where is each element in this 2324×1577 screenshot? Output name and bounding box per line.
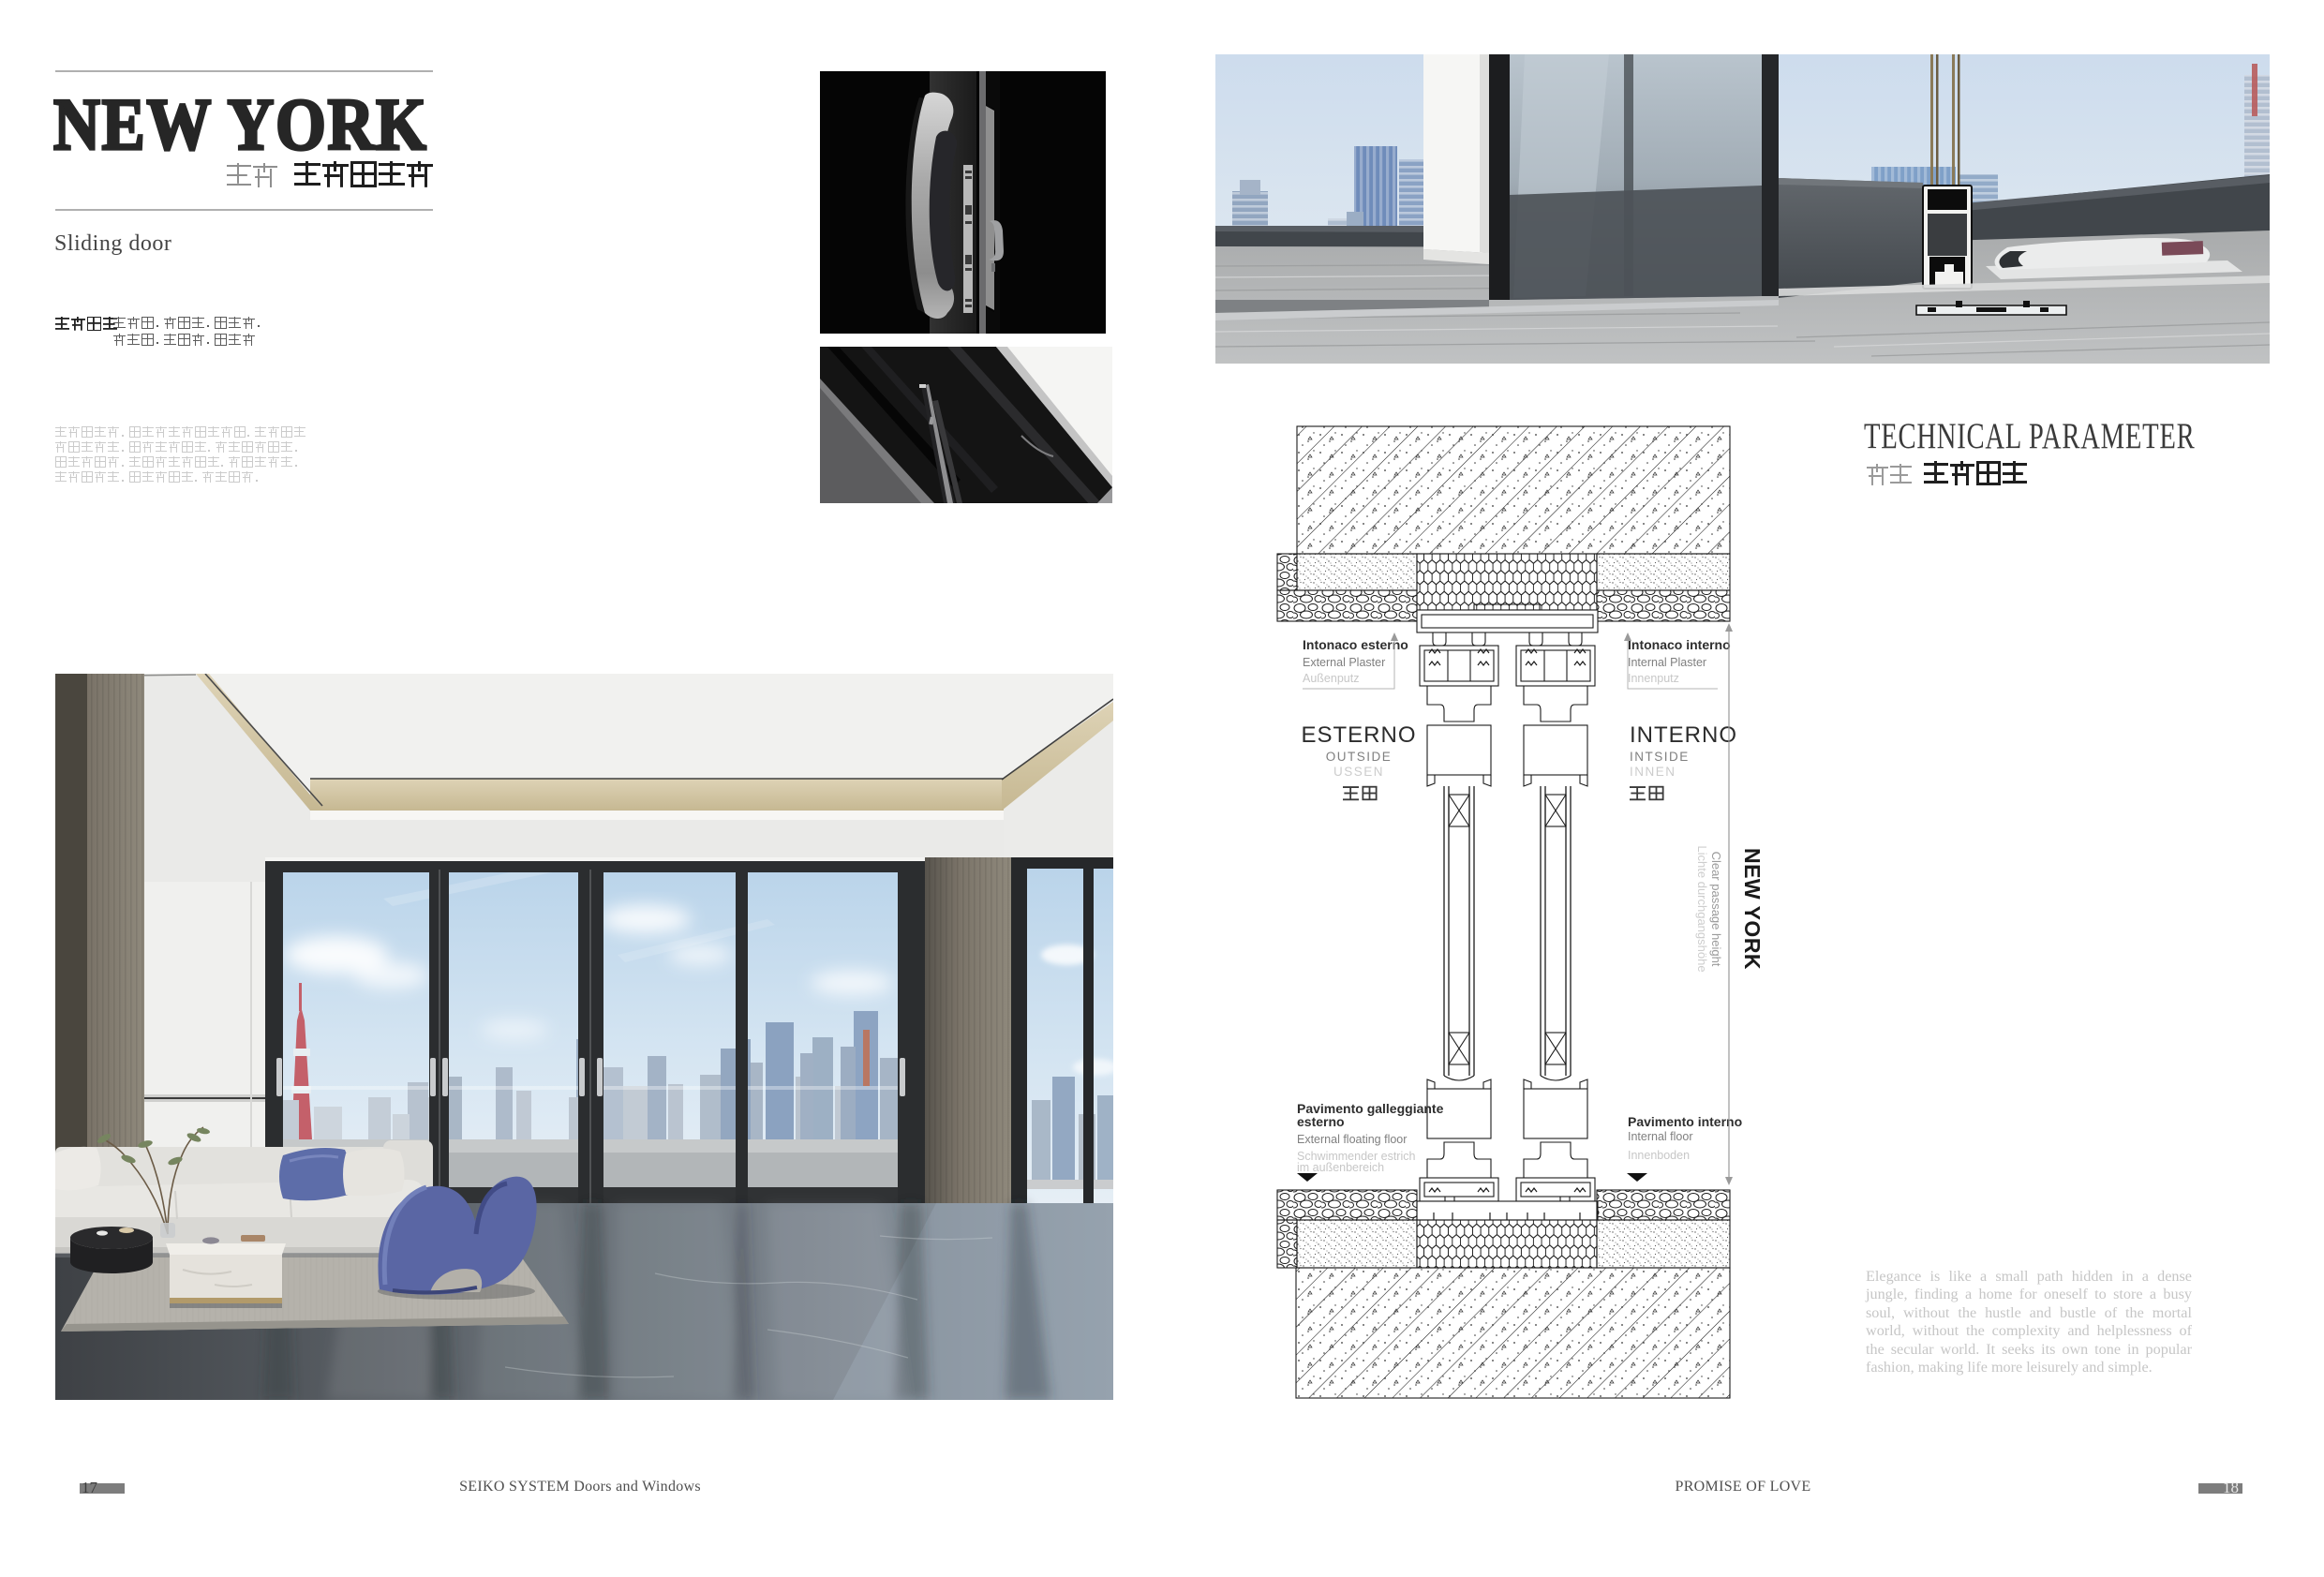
svg-text:Innenputz: Innenputz [1628, 672, 1679, 685]
svg-text:Pavimento interno: Pavimento interno [1628, 1114, 1742, 1129]
svg-text:Intonaco interno: Intonaco interno [1628, 637, 1731, 652]
svg-text:INTSIDE: INTSIDE [1630, 750, 1690, 764]
svg-text:Innenboden: Innenboden [1628, 1149, 1690, 1162]
svg-text:USSEN: USSEN [1333, 765, 1384, 779]
svg-text:esterno: esterno [1297, 1114, 1345, 1129]
svg-text:External Plaster: External Plaster [1303, 656, 1385, 669]
svg-text:ESTERNO: ESTERNO [1301, 722, 1416, 748]
svg-text:Lichte durchgangshöhe: Lichte durchgangshöhe [1695, 845, 1709, 972]
svg-text:im außenbereich: im außenbereich [1297, 1161, 1384, 1174]
svg-text:INNEN: INNEN [1630, 765, 1676, 779]
svg-text:Internal Plaster: Internal Plaster [1628, 656, 1706, 669]
svg-text:Clear passage height: Clear passage height [1709, 852, 1723, 967]
svg-text:INTERNO: INTERNO [1630, 722, 1737, 748]
svg-text:External floating floor: External floating floor [1297, 1133, 1407, 1146]
svg-text:OUTSIDE: OUTSIDE [1326, 750, 1393, 764]
svg-text:Internal floor: Internal floor [1628, 1130, 1692, 1143]
svg-text:NEW YORK: NEW YORK [1740, 848, 1765, 970]
svg-text:Außenputz: Außenputz [1303, 672, 1359, 685]
